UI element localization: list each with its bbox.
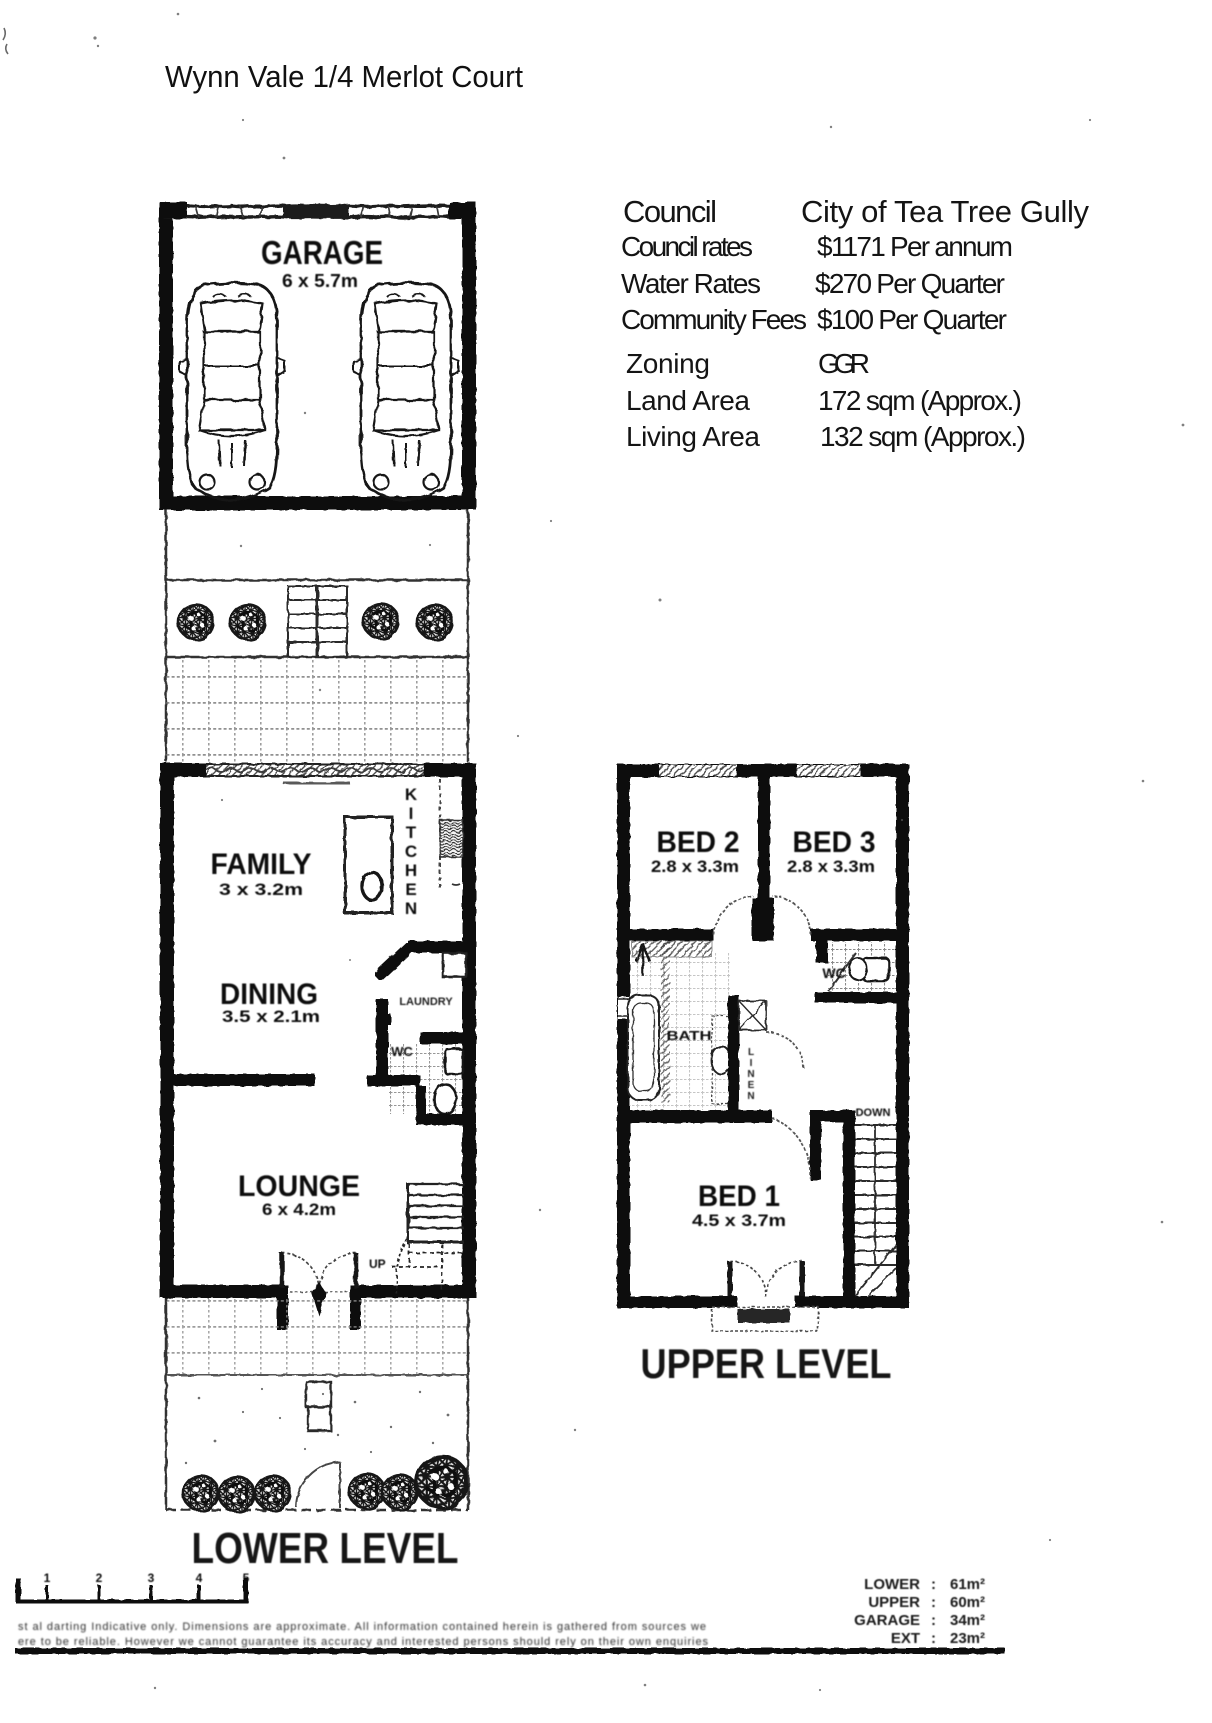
svg-text:6 x 4.2m: 6 x 4.2m <box>262 1200 336 1219</box>
svg-text:3: 3 <box>148 1571 155 1585</box>
svg-text:Water Rates: Water Rates <box>621 268 761 299</box>
svg-text:Council: Council <box>623 194 717 229</box>
svg-text:EXT: EXT <box>891 1630 920 1647</box>
svg-text:UPPER: UPPER <box>868 1594 920 1611</box>
svg-text:WC: WC <box>391 1044 413 1059</box>
svg-text::: : <box>931 1576 936 1593</box>
svg-text:ere to be reliable. However we: ere to be reliable. However we cannot gu… <box>18 1636 709 1648</box>
svg-text:$100 Per Quarter: $100 Per Quarter <box>817 304 1007 335</box>
svg-text:C: C <box>405 842 417 861</box>
svg-text:BED 3: BED 3 <box>793 826 876 859</box>
svg-text:BED 2: BED 2 <box>657 826 740 859</box>
svg-text:2.8 x 3.3m: 2.8 x 3.3m <box>787 857 875 876</box>
svg-text:6 x 5.7m: 6 x 5.7m <box>282 271 358 291</box>
svg-text:K: K <box>405 785 418 804</box>
svg-text:4.5 x 3.7m: 4.5 x 3.7m <box>692 1211 786 1230</box>
svg-text:T: T <box>406 823 417 842</box>
svg-text:Council rates: Council rates <box>621 231 753 262</box>
svg-text:E: E <box>748 1080 755 1091</box>
svg-text:City of Tea Tree Gully: City of Tea Tree Gully <box>801 194 1090 229</box>
svg-text:LAUNDRY: LAUNDRY <box>399 996 453 1008</box>
svg-text:GARAGE: GARAGE <box>261 234 383 271</box>
svg-text:2.8 x 3.3m: 2.8 x 3.3m <box>651 857 739 876</box>
svg-text:$270 Per Quarter: $270 Per Quarter <box>815 268 1005 299</box>
svg-text:FAMILY: FAMILY <box>211 848 312 881</box>
svg-text:LOWER: LOWER <box>864 1576 920 1593</box>
svg-text::: : <box>931 1594 936 1611</box>
svg-text:5: 5 <box>243 1571 250 1585</box>
svg-text:H: H <box>405 861 417 880</box>
svg-text:132 sqm (Approx.): 132 sqm (Approx.) <box>820 421 1026 452</box>
svg-text:UPPER LEVEL: UPPER LEVEL <box>641 1340 892 1387</box>
svg-text:Living Area: Living Area <box>626 421 760 452</box>
svg-text:E: E <box>405 880 416 899</box>
svg-text:UP: UP <box>369 1257 386 1271</box>
svg-text:61m²: 61m² <box>950 1576 985 1593</box>
svg-text:1: 1 <box>44 1571 51 1585</box>
svg-text:60m²: 60m² <box>950 1594 985 1611</box>
svg-text:I: I <box>409 804 414 823</box>
svg-text:DOWN: DOWN <box>856 1107 891 1119</box>
svg-text:LOUNGE: LOUNGE <box>238 1170 360 1203</box>
svg-text:GGR: GGR <box>818 348 870 379</box>
svg-text:st al darting Indicative only: st al darting Indicative only. Dimension… <box>18 1621 706 1633</box>
svg-text:Wynn Vale 1/4 Merlot Court: Wynn Vale 1/4 Merlot Court <box>165 59 523 94</box>
svg-text:4: 4 <box>196 1571 203 1585</box>
svg-text:LOWER LEVEL: LOWER LEVEL <box>192 1524 459 1573</box>
svg-text:$1171 Per annum: $1171 Per annum <box>817 231 1013 262</box>
svg-text:3 x 3.2m: 3 x 3.2m <box>219 880 303 899</box>
svg-text:Community Fees: Community Fees <box>621 304 807 335</box>
svg-text:I: I <box>750 1058 753 1069</box>
svg-text::: : <box>931 1630 936 1647</box>
svg-text:Land Area: Land Area <box>626 385 750 416</box>
svg-text:23m²: 23m² <box>950 1630 985 1647</box>
svg-text:34m²: 34m² <box>950 1612 985 1629</box>
svg-text:N: N <box>747 1069 754 1080</box>
svg-text:2: 2 <box>96 1571 103 1585</box>
svg-text:Zoning: Zoning <box>626 348 710 379</box>
svg-text:172 sqm (Approx.): 172 sqm (Approx.) <box>818 385 1022 416</box>
svg-text:WC: WC <box>822 965 845 981</box>
svg-text:BATH: BATH <box>667 1028 712 1043</box>
svg-text:GARAGE: GARAGE <box>854 1612 920 1629</box>
svg-text::: : <box>931 1612 936 1629</box>
svg-text:BED 1: BED 1 <box>698 1180 780 1213</box>
svg-text:L: L <box>748 1047 754 1058</box>
svg-text:3.5 x 2.1m: 3.5 x 2.1m <box>222 1007 320 1026</box>
svg-text:N: N <box>405 899 417 918</box>
svg-text:N: N <box>747 1091 754 1102</box>
